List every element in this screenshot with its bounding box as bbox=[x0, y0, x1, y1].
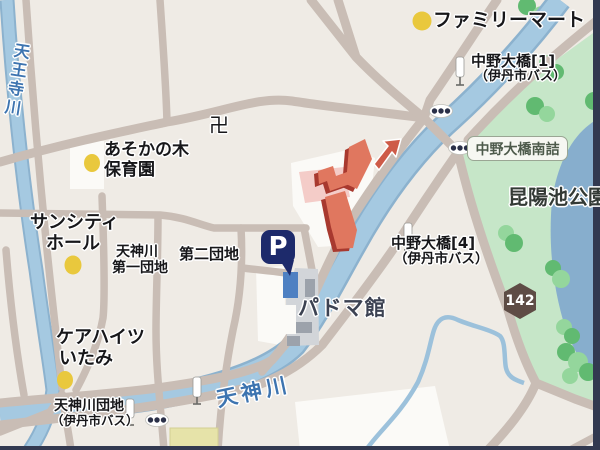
label-konyoike-park: 昆陽池公園 bbox=[508, 186, 600, 209]
suncity-dot bbox=[65, 256, 82, 275]
right-edge-shadow bbox=[593, 0, 600, 450]
nursery-dot bbox=[84, 154, 100, 172]
parking-marker-label: P bbox=[261, 231, 295, 263]
label-busstop-nakano-ohashi-1: 中野大橋[1] （伊丹市バス） bbox=[471, 53, 566, 85]
label-familymart: ファミリーマート bbox=[433, 10, 585, 32]
pill-nakano-ohashi-minamizume: 中野大橋南詰 bbox=[467, 136, 568, 161]
map-canvas: ファミリーマート 卍 あそかの木 保育園 天王寺川 サンシティ ホール 天神川 … bbox=[0, 0, 600, 450]
familymart-dot bbox=[413, 12, 432, 31]
label-tenjingawa-danchi-busstop: 天神川団地 （伊丹市バス） bbox=[54, 398, 139, 428]
route-142-badge-label: 142 bbox=[504, 293, 536, 309]
temple-manji-symbol: 卍 bbox=[209, 114, 229, 137]
traffic-light-icon bbox=[146, 414, 169, 427]
bottom-edge-shadow bbox=[0, 446, 600, 450]
traffic-light-icon bbox=[430, 105, 453, 118]
label-padoma-kan: パドマ館 bbox=[298, 296, 387, 320]
label-tenjingawa-daiichi-danchi: 天神川 第一団地 bbox=[112, 244, 162, 276]
label-nursery: あそかの木 保育園 bbox=[104, 141, 189, 180]
label-care-heights-itami: ケアハイツ いたみ bbox=[56, 328, 145, 369]
care-heights-dot bbox=[57, 371, 73, 389]
label-daini-danchi: 第二団地 bbox=[179, 246, 239, 263]
bus-stop-icon-nakano1 bbox=[456, 57, 464, 85]
parking-lot-rect bbox=[283, 272, 298, 298]
label-busstop-nakano-ohashi-4: 中野大橋[4] （伊丹市バス） bbox=[391, 235, 489, 268]
label-suncity-hall: サンシティ ホール bbox=[30, 213, 116, 254]
